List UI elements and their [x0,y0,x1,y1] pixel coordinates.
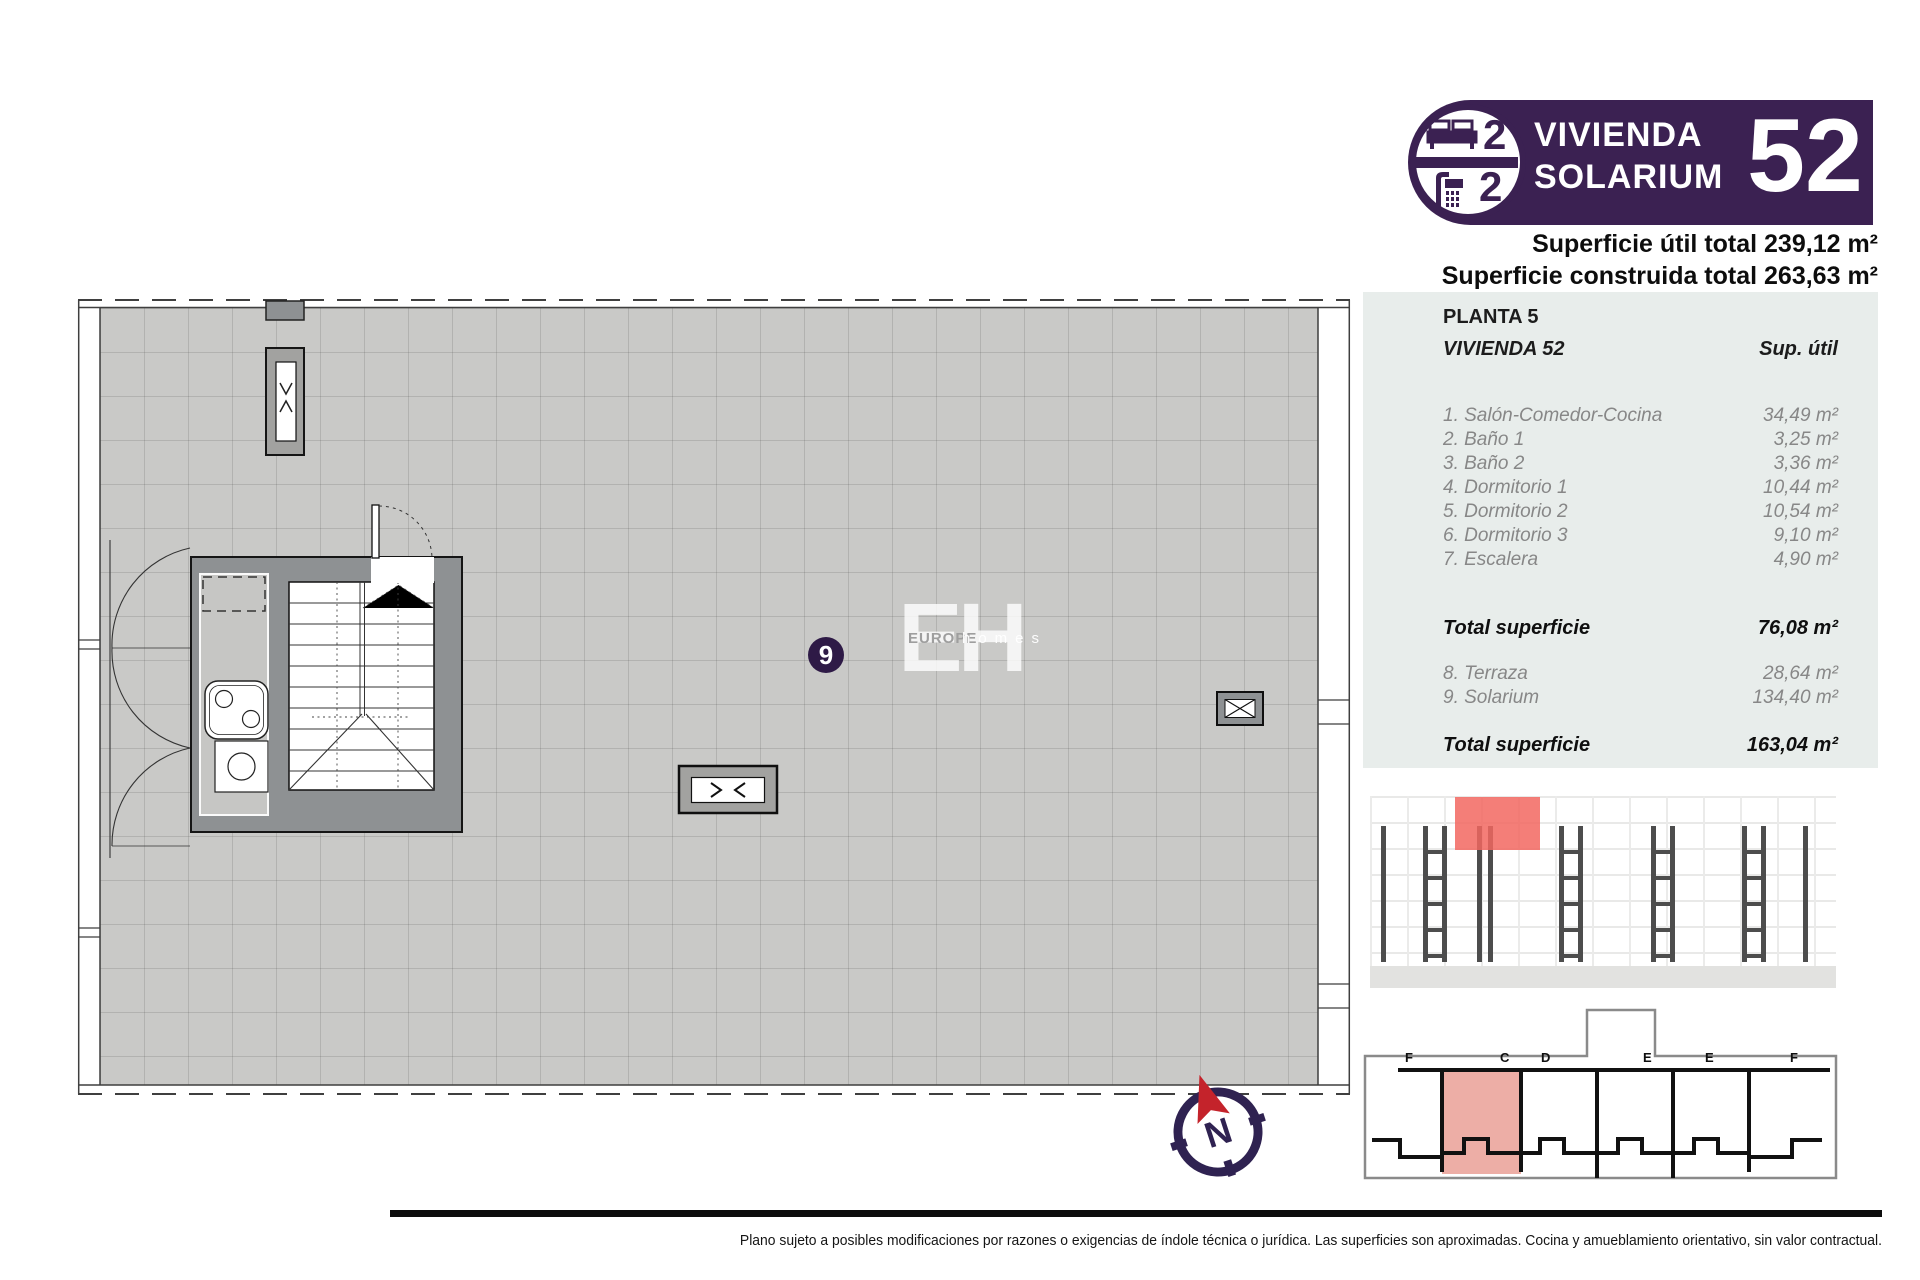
elevation-facade [1370,796,1836,968]
elevation-pillar [1381,826,1386,962]
key-plan: F C D E E F [1360,1005,1842,1185]
table-row: 8. Terraza28,64 m² [1443,662,1838,686]
unit-label: VIVIENDA 52 [1443,338,1565,361]
key-plan-letter: E [1643,1050,1652,1065]
extra-room-list: 8. Terraza28,64 m² 9. Solarium134,40 m² [1443,662,1838,710]
key-plan-letter: E [1705,1050,1714,1065]
elevation-pillar [1670,826,1675,962]
elevation-rung [1653,876,1673,880]
elevation-pillar [1559,826,1564,962]
elevation-rung [1653,954,1673,958]
elevation-rung [1425,876,1445,880]
elevation-rung [1744,928,1764,932]
key-plan-unit-highlight [1442,1070,1521,1174]
key-plan-letter: C [1500,1050,1509,1065]
badge-title-line1: VIVIENDA [1534,118,1703,152]
elevation-rung [1425,954,1445,958]
elevation-rung [1425,928,1445,932]
elevation-pillar [1803,826,1808,962]
floor-label: PLANTA 5 [1443,306,1539,329]
key-plan-letter: F [1405,1050,1413,1065]
elevation-unit-highlight [1455,797,1540,850]
key-plan-letter: F [1790,1050,1798,1065]
bed-icon [1426,118,1478,150]
elevation-rung [1561,954,1581,958]
elevation-ground [1370,966,1836,988]
building-elevation [1370,790,1836,990]
total-row: Total superficie163,04 m² [1443,733,1838,757]
badge-divider [1414,157,1518,168]
unit-number: 52 [1736,106,1874,206]
table-row: 4. Dormitorio 110,44 m² [1443,476,1838,500]
total-built-area: Superficie construida total 263,63 m² [1078,262,1878,291]
elevation-rung [1561,876,1581,880]
subtotal-row: Total superficie76,08 m² [1443,616,1838,640]
elevation-pillar [1651,826,1656,962]
elevation-rung [1561,850,1581,854]
key-plan-letter: D [1541,1050,1550,1065]
bathrooms-count: 2 [1479,166,1502,208]
badge-title-line2: SOLARIUM [1534,160,1723,194]
footer-disclaimer: Plano sujeto a posibles modificaciones p… [450,1233,1882,1249]
footer-rule [390,1210,1882,1217]
elevation-rung [1653,850,1673,854]
table-row: 3. Baño 23,36 m² [1443,452,1838,476]
table-row: 9. Solarium134,40 m² [1443,686,1838,710]
elevation-rung [1653,928,1673,932]
elevation-rung [1561,902,1581,906]
room-list: 1. Salón-Comedor-Cocina34,49 m² 2. Baño … [1443,404,1838,572]
table-row: 2. Baño 13,25 m² [1443,428,1838,452]
elevation-rung [1425,850,1445,854]
elevation-pillar [1423,826,1428,962]
elevation-rung [1744,876,1764,880]
key-plan-drawing [1360,1005,1842,1185]
table-row: 7. Escalera4,90 m² [1443,548,1838,572]
areas-table: PLANTA 5 VIVIENDA 52 Sup. útil 1. Salón-… [1363,292,1878,768]
shower-icon [1434,170,1468,208]
bedrooms-count: 2 [1483,114,1506,156]
elevation-rung [1425,902,1445,906]
compass-north-label: N [1199,1109,1236,1156]
elevation-pillar [1578,826,1583,962]
elevation-rung [1653,902,1673,906]
elevation-rung [1561,928,1581,932]
table-row: 5. Dormitorio 210,54 m² [1443,500,1838,524]
elevation-pillar [1761,826,1766,962]
floorplan-sheet: EH EUROPE homes [0,0,1920,1280]
room-number-marker: 9 [808,637,844,673]
elevation-pillar [1442,826,1447,962]
elevation-pillar [1742,826,1747,962]
watermark-word-homes: homes [962,630,1047,647]
column-header: Sup. útil [1759,338,1838,361]
compass-icon: N [1155,1062,1285,1192]
table-row: 6. Dormitorio 39,10 m² [1443,524,1838,548]
solarium-floor-area [100,308,1318,1085]
elevation-rung [1744,902,1764,906]
table-row: 1. Salón-Comedor-Cocina34,49 m² [1443,404,1838,428]
total-useful-area: Superficie útil total 239,12 m² [1078,230,1878,259]
elevation-rung [1744,850,1764,854]
elevation-rung [1744,954,1764,958]
